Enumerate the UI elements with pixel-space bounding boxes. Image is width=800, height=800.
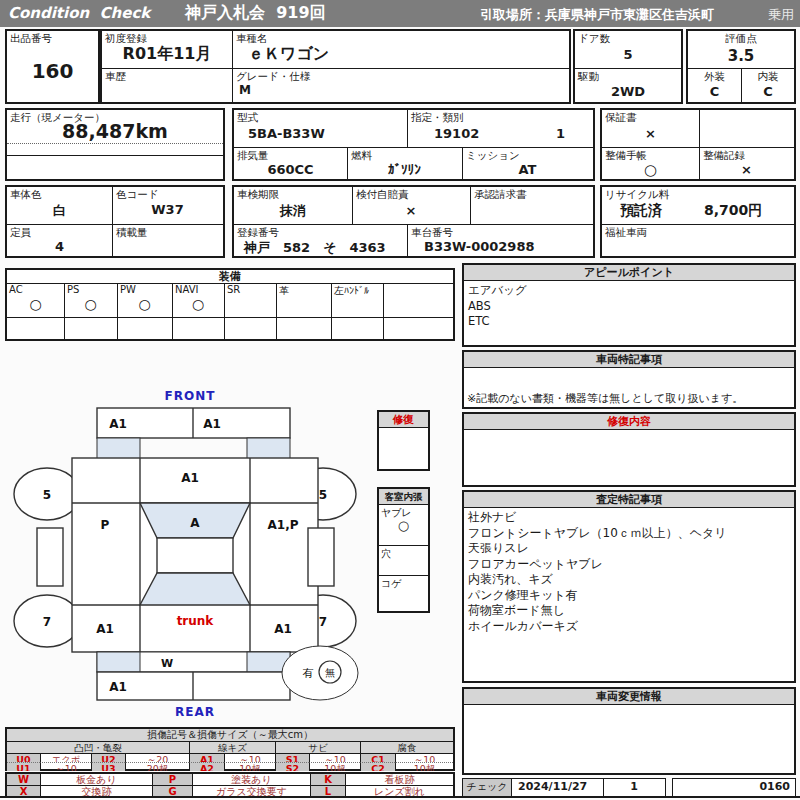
grade-label: グレード・仕様	[236, 70, 310, 84]
vehicle-notes-footnote: ※記載のない書類・機器等は無しとして取り扱います。	[467, 391, 743, 406]
divider	[7, 317, 453, 318]
legend-desc: ～10	[309, 753, 360, 762]
legend-code: U0	[7, 753, 40, 762]
assessment-line: 内装汚れ、キズ	[468, 572, 790, 588]
legend-group-dents: 凸凹・亀裂	[7, 741, 189, 753]
legend-code: K	[310, 774, 345, 785]
interior-grade: C	[742, 84, 794, 99]
maintenance-record-value: ×	[699, 162, 794, 177]
exterior-label: 外装	[688, 70, 741, 84]
repair-details-section: 修復内容	[462, 412, 796, 487]
mark-rear-wheel-left: 7	[43, 615, 51, 629]
legend-code: W	[7, 774, 40, 785]
registration-number-label: 登録番号	[237, 226, 279, 240]
equipment-label-navi: NAVI	[175, 284, 198, 295]
model-name-value: ｅＫワゴン	[248, 44, 329, 65]
mark-left-rear-quarter: A1	[96, 622, 114, 636]
vehicle-notes-body: ※記載のない書類・機器等は無しとして取り扱います。	[464, 368, 794, 407]
mark-rear-wheel-right: 7	[319, 615, 327, 629]
symbol-legend-table: W 板金あり P 塗装あり K 看板跡 X 交換跡 G ガラス交換要す L レン…	[5, 772, 455, 798]
class-value-1: 19102	[434, 126, 479, 141]
mark-left-front-door: P	[101, 518, 110, 532]
repair-flag-body	[379, 428, 428, 469]
check-code-box: 0160	[672, 778, 796, 797]
color-code-label: 色コード	[116, 188, 159, 202]
interior-label: 内装	[742, 70, 794, 84]
registration-number-value: 神戸 582 そ 4363	[244, 239, 386, 257]
load-label: 積載量	[116, 226, 148, 240]
model-code-label: 型式	[237, 111, 258, 125]
welfare-vehicle-label: 福祉車両	[605, 226, 647, 240]
divider	[102, 68, 569, 69]
documents-box: 保証書 × 整備手帳 ○ 整備記録 ×	[600, 108, 796, 181]
score-label: 評価点	[688, 32, 794, 46]
vehicle-notes-title: 車両特記事項	[464, 352, 794, 368]
class-label: 指定・類別	[411, 111, 464, 125]
recycle-box: リサイクル料 預託済 8,700円 福祉車両	[600, 185, 796, 258]
body-color-value: 白	[7, 202, 112, 220]
assessment-line: ホイールカバーキズ	[468, 619, 790, 635]
lot-number-value: 160	[7, 59, 98, 83]
assessment-line: 天張りスレ	[468, 541, 790, 557]
legend-code: S2	[275, 762, 309, 771]
vehicle-class: 乗用	[768, 6, 794, 24]
first-registration-value: R01年11月	[102, 44, 232, 65]
mileage-value: 88,487km	[7, 120, 223, 142]
legend-desc: 10超	[395, 762, 453, 771]
spec-box: 型式 5BA-B33W 指定・類別 19102 1 排気量 660CC 燃料 ｶ…	[232, 108, 595, 181]
divider	[224, 283, 225, 339]
mark-front-bumper-left: A1	[109, 417, 127, 431]
mark-front-wheel-left: 5	[43, 488, 51, 502]
header-bar: Condition Check 神戸入札会 919回 引取場所：兵庫県神戸市東灘…	[0, 0, 800, 27]
score-value: 3.5	[688, 47, 794, 65]
grade-value: M	[239, 83, 251, 97]
legend-desc: ～10	[395, 753, 453, 762]
equipment-mark-ps: ○	[64, 296, 117, 312]
legend-desc: ～20	[125, 753, 189, 762]
mileage-box: 走行（現メーター） 88,487km	[5, 108, 225, 181]
front-label: FRONT	[165, 389, 216, 403]
mark-front-wheel-right: 5	[319, 488, 327, 502]
divider	[383, 283, 384, 339]
color-capacity-box: 車体色 白 色コード W37 定員 4 積載量	[5, 185, 225, 258]
doors-label: ドア数	[578, 32, 610, 46]
recycle-fee-label: リサイクル料	[605, 188, 669, 202]
mark-rear-panel: W	[161, 657, 173, 670]
divider	[7, 143, 223, 144]
divider	[7, 224, 223, 225]
legend-title: 損傷記号＆損傷サイズ（～最大cm）	[7, 729, 453, 741]
recycle-status: 預託済	[620, 202, 662, 220]
recycle-fee-value: 8,700円	[704, 202, 762, 220]
legend-code: X	[7, 785, 40, 796]
assessment-line: フロントシートヤブレ（10ｃｍ以上）、ヘタリ	[468, 526, 790, 542]
legend-desc: レンズ割れ	[345, 785, 453, 796]
assessment-line: 社外ナビ	[468, 510, 790, 526]
legend-desc: 20超	[125, 762, 189, 771]
assessment-line: 荷物室ボード無し	[468, 603, 790, 619]
doors-value: 5	[575, 47, 681, 62]
repair-details-body	[464, 430, 794, 485]
equipment-label-ps: PS	[67, 284, 79, 295]
mark-right-front-door: A1,P	[268, 518, 299, 532]
capacity-label: 定員	[10, 226, 31, 240]
displacement-value: 660CC	[234, 162, 347, 177]
cabin-tear-mark: ○	[379, 518, 428, 533]
displacement-label: 排気量	[237, 149, 269, 163]
assessment-notes-body: 社外ナビ フロントシートヤブレ（10ｃｍ以上）、ヘタリ 天張りスレ フロアカーペ…	[464, 508, 794, 681]
divider	[407, 110, 408, 147]
registration-model-box: 初度登録 R01年11月 車歴 車種名 ｅＫワゴン グレード・仕様 M	[100, 29, 571, 104]
class-value-2: 1	[556, 126, 565, 141]
appeal-line: エアバッグ	[468, 283, 790, 299]
divider	[470, 187, 471, 224]
equipment-title: 装備	[7, 270, 453, 283]
auction-title: 神戸入札会 919回	[185, 3, 326, 24]
drive-value: 2WD	[575, 84, 681, 99]
legend-desc: ～10	[40, 762, 91, 771]
legend-code: A2	[189, 762, 224, 771]
cabin-burn-label: コゲ	[381, 577, 401, 591]
assessment-notes-section: 査定特記事項 社外ナビ フロントシートヤブレ（10ｃｍ以上）、ヘタリ 天張りスレ…	[462, 490, 796, 683]
divider	[232, 31, 233, 102]
inspection-label: 車検期限	[237, 188, 279, 202]
color-code-value: W37	[112, 202, 223, 217]
fuel-label: 燃料	[351, 149, 372, 163]
insurance-label: 検付自賠責	[356, 188, 409, 202]
inspection-registration-box: 車検期限 抹消 検付自賠責 × 承認請求書 登録番号 神戸 582 そ 4363…	[232, 185, 595, 258]
divider	[276, 283, 277, 339]
mark-hood: A1	[181, 471, 199, 485]
vehicle-notes-section: 車両特記事項 ※記載のない書類・機器等は無しとして取り扱います。	[462, 350, 796, 409]
divider	[331, 283, 332, 339]
legend-code: A1	[189, 753, 224, 762]
check-row: チェック 2024/11/27 1	[462, 778, 666, 797]
equipment-label-lhd: 左ﾊﾝﾄﾞﾙ	[334, 284, 369, 298]
mark-right-rear-quarter: A1	[274, 622, 292, 636]
capacity-value: 4	[7, 239, 112, 254]
rear-label: REAR	[175, 705, 215, 719]
history-label: 車歴	[105, 70, 126, 84]
equipment-mark-ac: ○	[7, 296, 64, 312]
cabin-row-tear: ヤブレ ○	[379, 505, 428, 545]
car-damage-diagram: FRONT A1 A1 A1 5 5 A P A1,P 7 7 A1 A1 tr…	[5, 383, 365, 728]
assessment-line: フロアカーペットヤブレ	[468, 557, 790, 573]
legend-group-rust: サビ	[275, 741, 360, 753]
legend-code: S1	[275, 753, 309, 762]
appeal-title: アピールポイント	[464, 265, 794, 281]
divider	[7, 155, 223, 156]
equipment-label-leather: 革	[279, 284, 289, 298]
appeal-line: ABS	[468, 299, 790, 315]
repair-flag-title: 修復	[379, 412, 428, 428]
change-info-title: 車両変更情報	[464, 689, 794, 705]
legend-code: L	[310, 785, 345, 796]
legend-desc: 交換跡	[40, 785, 152, 796]
exterior-grade: C	[688, 84, 741, 99]
approval-label: 承認請求書	[474, 188, 527, 202]
cabin-row-burn: コゲ	[379, 575, 428, 611]
divider	[511, 779, 512, 796]
bottom-rule	[0, 796, 800, 798]
divider	[407, 224, 408, 256]
legend-desc: エクボ	[40, 753, 91, 762]
cabin-hole-label: 穴	[381, 547, 391, 561]
chassis-number-value: B33W-0002988	[424, 239, 534, 254]
equipment-table: 装備 AC ○ PS ○ PW ○ NAVI ○ SR 革 左ﾊﾝﾄﾞﾙ	[5, 268, 455, 341]
appeal-body: エアバッグ ABS ETC	[464, 281, 794, 345]
change-info-body	[464, 705, 794, 773]
legend-desc: 10超	[224, 762, 275, 771]
cabin-lining-box: 客室内張 ヤブレ ○ 穴 コゲ	[377, 487, 430, 613]
check-label: チェック	[463, 779, 511, 796]
legend-desc: ～10	[224, 753, 275, 762]
score-box: 評価点 3.5 外装 C 内装 C	[686, 29, 796, 104]
legend-desc: 板金あり	[40, 774, 152, 785]
check-count: 1	[603, 780, 665, 793]
body-color-label: 車体色	[10, 188, 42, 202]
check-code: 0160	[759, 780, 790, 793]
legend-code: U1	[7, 762, 40, 771]
mark-rear-bumper-left: A1	[109, 680, 127, 694]
divider	[602, 147, 794, 148]
mark-windshield: A	[190, 516, 200, 530]
drive-label: 駆動	[578, 70, 599, 84]
appeal-section: アピールポイント エアバッグ ABS ETC	[462, 263, 796, 347]
inspection-value: 抹消	[234, 202, 352, 220]
trunk-label: trunk	[177, 614, 215, 628]
legend-group-scratch: 線キズ	[189, 741, 275, 753]
cabin-row-hole: 穴	[379, 545, 428, 575]
chassis-number-label: 車台番号	[411, 226, 453, 240]
legend-code: U3	[91, 762, 125, 771]
transmission-label: ミッション	[466, 149, 520, 163]
appeal-line: ETC	[468, 314, 790, 330]
model-code-value: 5BA-B33W	[248, 126, 325, 141]
assessment-notes-title: 査定特記事項	[464, 492, 794, 508]
car-outline	[14, 408, 358, 700]
legend-desc: 看板跡	[345, 774, 453, 785]
maintenance-book-value: ○	[602, 161, 699, 179]
equipment-label-ac: AC	[9, 284, 23, 295]
warranty-label: 保証書	[605, 111, 637, 125]
assessment-line: パンク修理キット有	[468, 588, 790, 604]
change-info-section: 車両変更情報	[462, 687, 796, 775]
divider	[234, 147, 593, 148]
spare-presence-label: 有	[303, 667, 314, 680]
equipment-label-pw: PW	[120, 284, 136, 295]
legend-desc: 10超	[309, 762, 360, 771]
pickup-location: 引取場所：兵庫県神戸市東灘区住吉浜町	[480, 6, 714, 24]
lot-number-label: 出品番号	[10, 32, 52, 46]
cabin-lining-title: 客室内張	[379, 489, 428, 505]
divider	[234, 224, 593, 225]
mark-front-bumper-right: A1	[203, 417, 221, 431]
condition-check-sheet: Condition Check 神戸入札会 919回 引取場所：兵庫県神戸市東灘…	[0, 0, 800, 800]
divider	[575, 68, 681, 69]
transmission-value: AT	[462, 162, 593, 177]
equipment-mark-navi: ○	[172, 296, 224, 312]
spare-absence-label: 無	[325, 667, 335, 678]
maintenance-record-label: 整備記録	[703, 149, 745, 163]
lot-number-box: 出品番号 160	[5, 29, 100, 104]
fuel-value: ｶﾞｿﾘﾝ	[347, 162, 462, 177]
repair-flag-box: 修復	[377, 410, 430, 471]
divider	[112, 187, 113, 256]
brand-logo: Condition Check	[8, 4, 150, 22]
legend-code: U2	[91, 753, 125, 762]
legend-code: C1	[360, 753, 395, 762]
legend-code: G	[152, 785, 192, 796]
equipment-label-sr: SR	[227, 284, 240, 295]
insurance-value: ×	[352, 203, 470, 218]
damage-legend-table: 損傷記号＆損傷サイズ（～最大cm） 凸凹・亀裂 線キズ サビ 腐食 U0 エクボ…	[5, 727, 455, 771]
divider	[602, 224, 794, 225]
legend-code: C2	[360, 762, 395, 771]
check-date: 2024/11/27	[518, 780, 587, 793]
legend-code: P	[152, 774, 192, 785]
legend-group-corrosion: 腐食	[360, 741, 453, 753]
warranty-value: ×	[602, 126, 699, 141]
legend-desc: 塗装あり	[192, 774, 310, 785]
legend-desc: ガラス交換要す	[192, 785, 310, 796]
equipment-mark-pw: ○	[117, 296, 172, 312]
doors-drive-box: ドア数 5 駆動 2WD	[573, 29, 683, 104]
repair-details-title: 修復内容	[464, 414, 794, 430]
